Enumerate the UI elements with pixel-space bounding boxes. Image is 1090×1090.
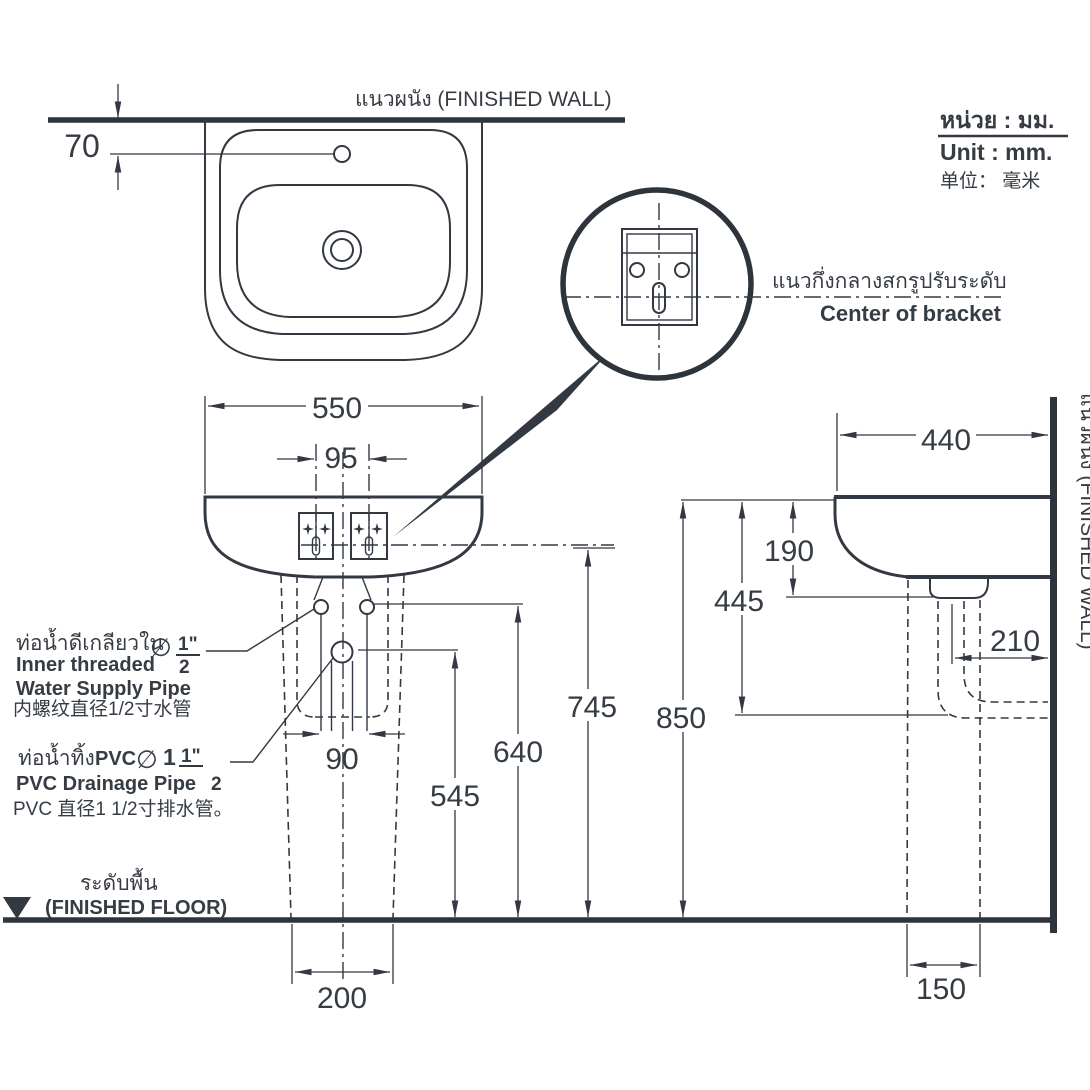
dim-supply-spacing: 90 bbox=[325, 743, 358, 776]
pedestal-side-front bbox=[907, 580, 908, 918]
faucet-hole bbox=[334, 146, 350, 162]
supply-pipe-label: ท่อน้ำดีเกลียวใน ∅ 1" 2 Inner threaded W… bbox=[13, 609, 314, 720]
drain-whole: 1 bbox=[163, 744, 176, 770]
finished-wall-label-plan: แนวผนัง (FINISHED WALL) bbox=[355, 88, 612, 111]
supply-cn: 内螺纹直径1/2寸水管 bbox=[13, 698, 191, 720]
finished-wall-line-side bbox=[1050, 397, 1057, 933]
basin-plan-bowl bbox=[237, 185, 450, 317]
supply-frac-den: 2 bbox=[179, 657, 190, 678]
diameter-symbol-2: ∅ bbox=[136, 746, 158, 774]
floor: ระดับพื้น (FINISHED FLOOR) bbox=[3, 868, 1053, 920]
drain-hole-outer bbox=[323, 231, 361, 269]
finished-wall-label-side: แนวผนัง (FINISHED WALL) bbox=[1076, 393, 1090, 650]
supply-pipe-left bbox=[314, 600, 328, 614]
bracket-detail: แนวกึ่งกลางสกรูปรับระดับ Center of brack… bbox=[393, 190, 1007, 537]
dim-rim-drop: 190 bbox=[764, 535, 814, 568]
supply-en1: Inner threaded bbox=[16, 654, 155, 676]
dim-pedestal-width: 200 bbox=[317, 982, 367, 1015]
installation-diagram: แนวผนัง (FINISHED WALL) 70 หน่วย : มม. U… bbox=[0, 0, 1090, 1090]
dim-bracket-height: 745 bbox=[567, 691, 617, 724]
unit-en: Unit : mm. bbox=[940, 139, 1052, 165]
dim-depth: 440 bbox=[921, 424, 971, 457]
pedestal-front-right bbox=[393, 575, 404, 918]
unit-thai: หน่วย : มม. bbox=[940, 107, 1054, 133]
drain-frac-num: 1" bbox=[181, 746, 201, 767]
drain-boss bbox=[930, 577, 988, 598]
supply-thai: ท่อน้ำดีเกลียวใน bbox=[16, 628, 164, 655]
floor-level-marker bbox=[3, 897, 31, 919]
magnifier-pointer bbox=[393, 352, 609, 537]
supply-pipe-right bbox=[360, 600, 374, 614]
dim-bracket-spacing: 95 bbox=[324, 442, 357, 475]
unit-box: หน่วย : มม. Unit : mm. 单位： 毫米 bbox=[938, 107, 1068, 192]
unit-cn: 单位： 毫米 bbox=[940, 170, 1040, 192]
trap-outer bbox=[938, 601, 1048, 718]
plan-view: แนวผนัง (FINISHED WALL) 70 bbox=[48, 84, 625, 360]
drain-cn: PVC 直径1 1/2寸排水管。 bbox=[13, 798, 233, 820]
drain-hole-inner bbox=[331, 239, 353, 261]
center-bracket-en: Center of bracket bbox=[820, 301, 1002, 326]
dim-supply-height: 640 bbox=[493, 736, 543, 769]
dim-width: 550 bbox=[312, 392, 362, 425]
dim-pedestal-depth: 150 bbox=[916, 973, 966, 1006]
dim-outlet-offset: 210 bbox=[990, 625, 1040, 658]
drain-frac-den: 2 bbox=[211, 774, 222, 795]
supply-frac-num: 1" bbox=[178, 634, 198, 655]
side-view: 440 190 445 210 150 แนวผนัง (FINISHED WA… bbox=[712, 393, 1090, 1006]
finished-floor-en: (FINISHED FLOOR) bbox=[45, 897, 227, 919]
dim-rim-height: 850 bbox=[656, 702, 706, 735]
center-bracket-thai: แนวกึ่งกลางสกรูปรับระดับ bbox=[772, 266, 1007, 294]
supply-en2: Water Supply Pipe bbox=[16, 678, 191, 700]
drain-thai: ท่อน้ำทิ้ง bbox=[18, 743, 95, 770]
drain-pipe bbox=[332, 642, 353, 663]
finished-floor-thai: ระดับพื้น bbox=[80, 868, 158, 895]
drain-leader bbox=[230, 658, 333, 762]
dim-faucet-offset: 70 bbox=[64, 128, 100, 164]
drain-en: PVC Drainage Pipe bbox=[16, 773, 196, 795]
dim-rim-to-outlet: 445 bbox=[714, 585, 764, 618]
dim-drain-height: 545 bbox=[430, 780, 480, 813]
basin-side-front bbox=[835, 497, 908, 577]
drain-pvc: PVC bbox=[95, 748, 136, 770]
